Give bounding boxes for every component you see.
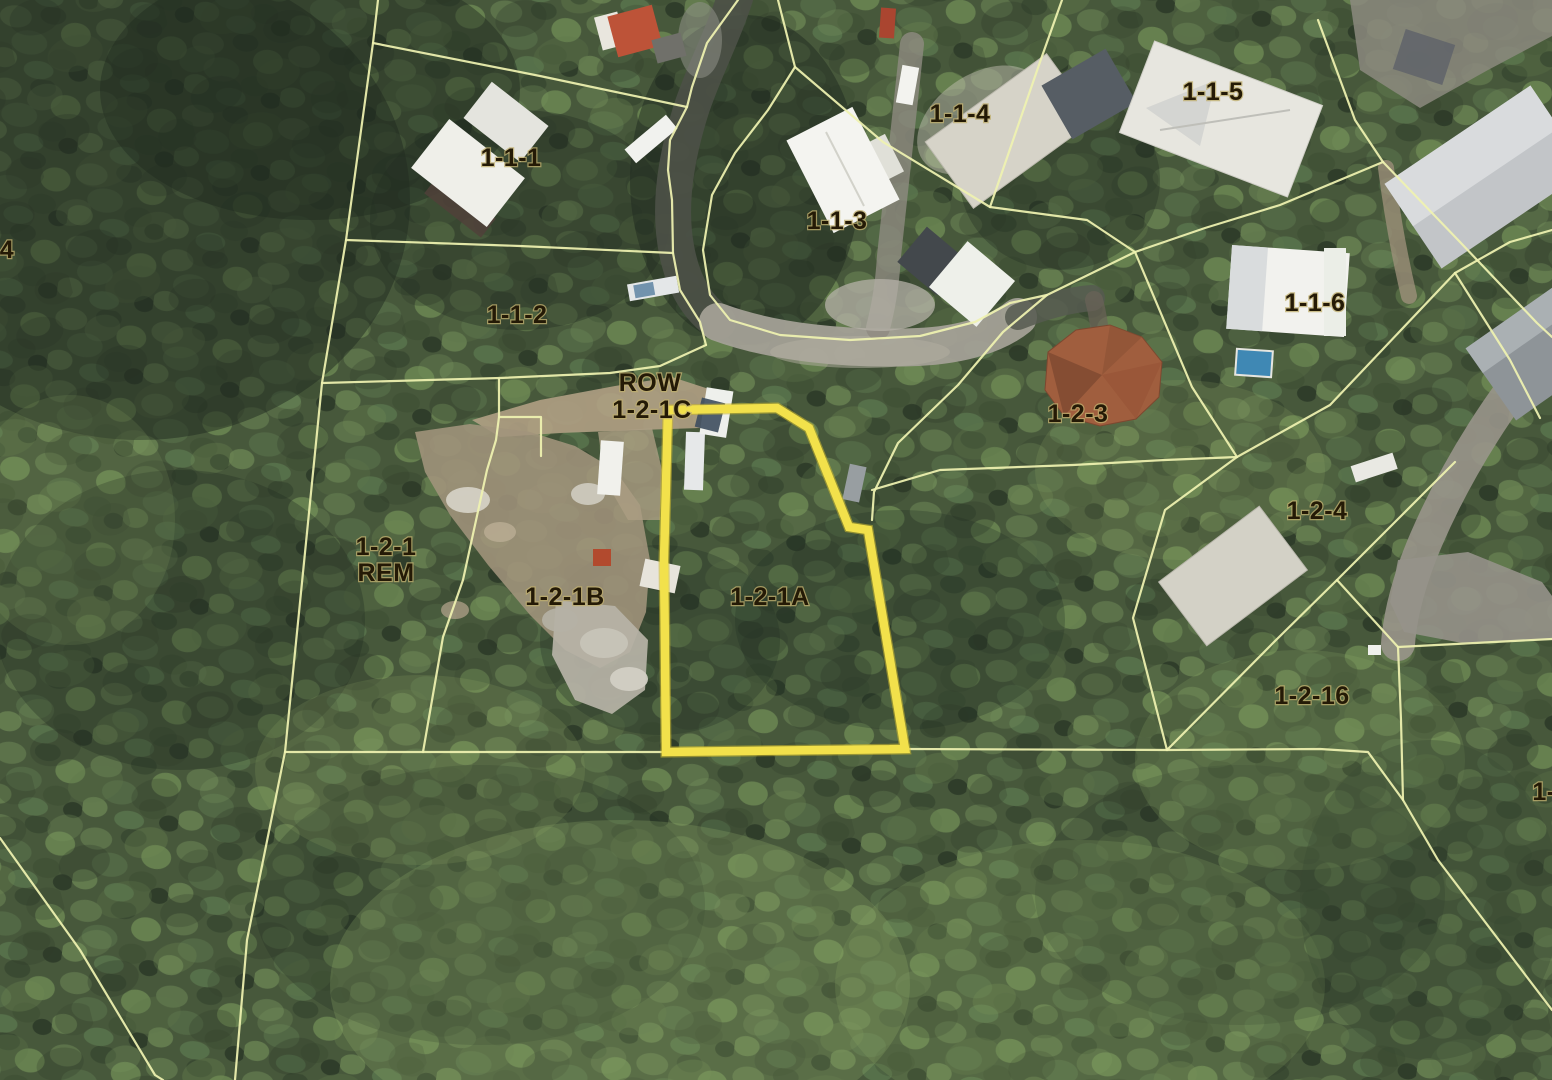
parcel-label-row-line2: 1-2-1C [612, 396, 691, 424]
parcel-label-1-2-1A: 1-2-1A [730, 583, 809, 611]
parcel-label-edge-left: 4 [0, 236, 14, 264]
parcel-label-1-2-16: 1-2-16 [1274, 682, 1349, 710]
aerial-parcel-map[interactable]: 1-1-1 1-1-2 1-1-3 1-1-4 1-1-5 1-1-6 1-2-… [0, 0, 1552, 1080]
parcel-label-1-1-4: 1-1-4 [930, 100, 991, 128]
parcel-label-1-1-5: 1-1-5 [1183, 78, 1244, 106]
parcel-label-rem-line2: REM [357, 559, 414, 587]
map-canvas[interactable]: 1-1-1 1-1-2 1-1-3 1-1-4 1-1-5 1-1-6 1-2-… [0, 0, 1552, 1080]
parcel-label-1-1-2: 1-1-2 [487, 301, 548, 329]
forest-texture [0, 0, 1552, 1080]
parcel-label-rem-line1: 1-2-1 [356, 533, 417, 561]
parcel-label-1-1-3: 1-1-3 [807, 207, 868, 235]
parcel-label-row-line1: ROW [619, 369, 682, 397]
parcel-label-1-1-6: 1-1-6 [1285, 289, 1346, 317]
parcel-label-1-1-1: 1-1-1 [481, 144, 542, 172]
parcel-label-1-2-3: 1-2-3 [1048, 400, 1109, 428]
parcel-label-1-2-1B: 1-2-1B [525, 583, 604, 611]
swimming-pool [1235, 349, 1273, 377]
parcel-label-edge-right: 1- [1532, 778, 1552, 806]
parcel-label-1-2-4: 1-2-4 [1287, 497, 1348, 525]
